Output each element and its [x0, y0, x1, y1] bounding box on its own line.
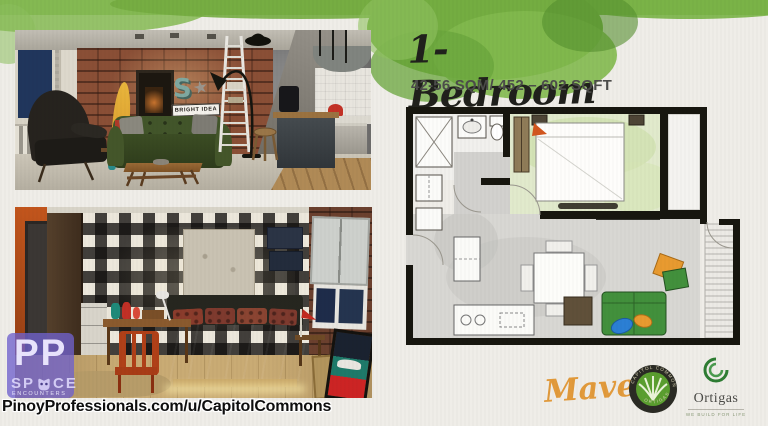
shower — [416, 117, 452, 167]
space-encounters-lockup: SP CE — [11, 375, 78, 392]
navy-frame — [267, 227, 303, 249]
unit-size-info: 42-56 SQM/ 452 – 602 SQFT — [411, 77, 612, 94]
bed — [532, 123, 624, 201]
underbed-glow — [165, 385, 305, 393]
closet — [416, 208, 442, 230]
nightstand — [629, 115, 644, 125]
ortigas-divider — [688, 409, 744, 410]
teal-decor — [111, 303, 120, 319]
toilet — [490, 116, 504, 140]
window-pane — [338, 289, 363, 324]
window-frame — [312, 284, 368, 330]
ortigas-logo: Ortigas WE BUILD FOR LIFE — [684, 356, 748, 417]
map-panel — [183, 229, 255, 297]
green-duvet — [161, 323, 307, 381]
accent-cushion-green — [663, 268, 689, 291]
upper-cabinets — [310, 216, 370, 286]
ac-ledge — [668, 114, 700, 210]
desk-leg — [107, 327, 110, 365]
red-vase — [122, 302, 131, 319]
navy-frame — [269, 251, 303, 271]
bed-pillow — [237, 308, 267, 324]
side-table-leg — [299, 340, 302, 366]
encounters-label: ENCOUNTERS — [12, 391, 67, 397]
sofa-plan — [602, 292, 666, 336]
pp-space-watermark: PP SP CE ENCOUNTERS — [7, 333, 74, 398]
capitol-commons-badge: CAPITOL COMMONS ORTIGAS — [627, 362, 679, 416]
ortigas-swirl-icon — [684, 356, 748, 386]
sink — [458, 116, 486, 138]
kitchen-counter — [454, 305, 534, 335]
desk-chair-seat — [115, 367, 157, 375]
poster-car — [337, 358, 362, 370]
owl-icon — [36, 376, 52, 392]
bed-pillow — [205, 308, 235, 324]
desk-lamp-head — [156, 291, 169, 299]
listing-url: PinoyProfessionals.com/u/CapitolCommons — [2, 398, 331, 416]
red-flag — [301, 309, 317, 320]
balcony-deck — [705, 224, 734, 338]
ortigas-name: Ortigas — [684, 391, 748, 407]
space-right: CE — [53, 375, 78, 392]
white-drawers — [81, 303, 107, 361]
wood-box — [142, 310, 164, 319]
space-left: SP — [11, 375, 35, 392]
pp-initials: PP — [14, 333, 67, 374]
red-vase — [133, 307, 140, 319]
living-room-overlay — [15, 30, 371, 190]
unit-title: 1-Bedroom — [407, 21, 629, 117]
ortigas-tagline: WE BUILD FOR LIFE — [684, 412, 748, 417]
chair-leg — [118, 375, 121, 393]
bed-bench — [558, 203, 618, 209]
desk-leg — [185, 327, 188, 363]
living-room-photo: S ★ BRIGHT IDEA — [15, 30, 371, 190]
chair-leg — [151, 375, 154, 393]
listing-flyer: S ★ BRIGHT IDEA — [0, 0, 768, 426]
desk-top — [103, 319, 191, 327]
floor-plan — [406, 107, 740, 345]
side-table-square — [564, 297, 592, 325]
window-pane — [315, 288, 335, 323]
